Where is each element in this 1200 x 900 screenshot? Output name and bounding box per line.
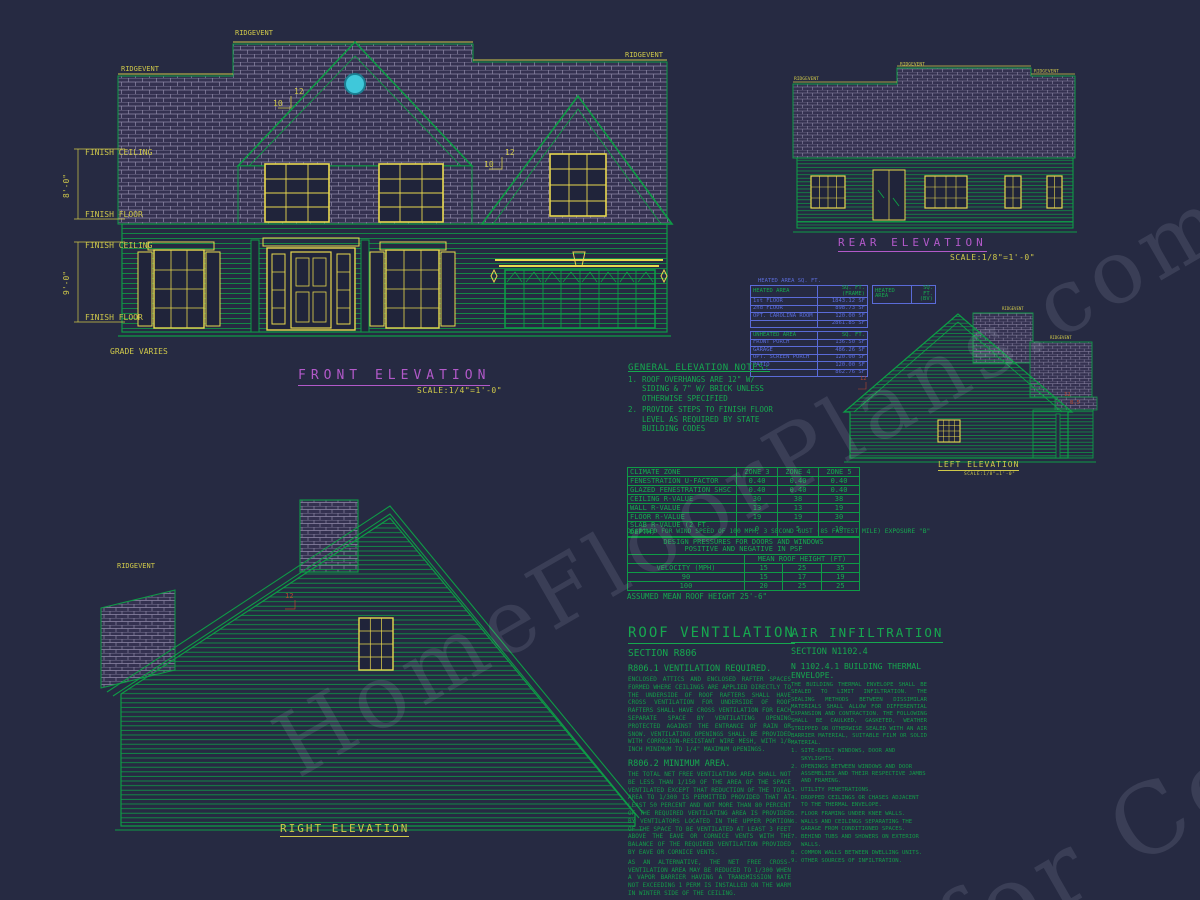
left-gable-vent bbox=[938, 420, 960, 442]
r806-1-head: R806.1 VENTILATION REQUIRED. bbox=[628, 664, 791, 674]
pitch-run: 10 bbox=[484, 160, 494, 169]
note-number: 1. bbox=[791, 748, 801, 763]
ridgevent-label: RIDGEVENT bbox=[1034, 69, 1059, 75]
dim-9-0: 9'-0" bbox=[62, 271, 71, 295]
note-text: SITE-BUILT WINDOWS, DOOR AND SKYLIGHTS. bbox=[801, 748, 927, 763]
n1102-head: N 1102.4.1 BUILDING THERMAL ENVELOPE. bbox=[791, 662, 927, 680]
table-cell: 13 bbox=[778, 504, 819, 513]
note-number: 4. bbox=[791, 795, 801, 810]
note-text: FLOOR FRAMING UNDER KNEE WALLS. bbox=[801, 811, 905, 818]
rear-sliding-door bbox=[873, 170, 905, 220]
right-elevation-title: RIGHT ELEVATION bbox=[280, 822, 409, 837]
pitch-rise: 12 bbox=[285, 592, 293, 600]
mean-roof-height-header: MEAN ROOF HEIGHT (FT) bbox=[745, 555, 860, 564]
front-door bbox=[263, 238, 359, 330]
r806-2-body: THE TOTAL NET FREE VENTILATING AREA SHAL… bbox=[628, 771, 791, 857]
air-item-7: 7.BEHIND TUBS AND SHOWERS ON EXTERIOR WA… bbox=[791, 834, 927, 849]
r806-2-head: R806.2 MINIMUM AREA. bbox=[628, 759, 791, 769]
front-elevation-scale: SCALE:1/4"=1'-0" bbox=[417, 386, 502, 395]
note-number: 7. bbox=[791, 834, 801, 849]
left-elevation-scale: SCALE:1/8"=1'-0" bbox=[964, 472, 1015, 477]
table-cell: 19 bbox=[819, 504, 860, 513]
rear-elevation-drawing: RIDGEVENT RIDGEVENT RIDGEVENT bbox=[785, 60, 1080, 238]
table-cell bbox=[751, 320, 818, 328]
table-cell: ZONE 5 bbox=[819, 468, 860, 477]
right-window bbox=[359, 618, 393, 670]
pressure-table-title: DESIGN PRESSURES FOR DOORS AND WINDOWS P… bbox=[628, 538, 860, 555]
note-number: 6. bbox=[791, 819, 801, 834]
grade-varies-label: GRADE VARIES bbox=[110, 347, 168, 356]
roof-ventilation-section: SECTION R806 bbox=[628, 648, 791, 659]
table-header-cell: UNHEATED AREA bbox=[751, 332, 818, 340]
pressure-title-line2: POSITIVE AND NEGATIVE IN PSF bbox=[630, 546, 857, 553]
finish-floor-label-upper: FINISH FLOOR bbox=[85, 210, 143, 219]
pitch-run: 8.5 bbox=[1070, 400, 1080, 406]
table-header-cell: SQ. FT. (FRAME) bbox=[818, 286, 868, 298]
note-number: 3. bbox=[791, 787, 801, 794]
table-cell: 15 bbox=[745, 573, 783, 582]
roof-ventilation-title: ROOF VENTILATION bbox=[628, 625, 795, 644]
air-item-2: 2.OPENINGS BETWEEN WINDOWS AND DOOR ASSE… bbox=[791, 764, 927, 786]
roof-ventilation-spec: ROOF VENTILATION SECTION R806 R806.1 VEN… bbox=[628, 622, 791, 900]
general-elevation-notes: GENERAL ELEVATION NOTES: 1. ROOF OVERHAN… bbox=[628, 363, 780, 433]
table-cell: 0.40 bbox=[778, 486, 819, 495]
table-cell: 13 bbox=[737, 504, 778, 513]
note-number: 2. bbox=[628, 405, 642, 433]
table-cell: 20 bbox=[745, 582, 783, 591]
rear-roof bbox=[793, 66, 1075, 158]
general-note-2: 2. PROVIDE STEPS TO FINISH FLOOR LEVEL A… bbox=[628, 405, 780, 433]
note-number: 2. bbox=[791, 764, 801, 786]
table-cell: 0.40 bbox=[819, 477, 860, 486]
pitch-rise: 12 bbox=[505, 148, 515, 157]
front-elevation-drawing: FINISH CEILING FINISH FLOOR FINISH CEILI… bbox=[55, 14, 685, 364]
r806-alternative: AS AN ALTERNATIVE, THE NET FREE CROSS-VE… bbox=[628, 859, 791, 898]
front-window-1 bbox=[138, 242, 220, 328]
note-number: 1. bbox=[628, 375, 642, 403]
front-window-2 bbox=[370, 242, 455, 328]
finish-ceiling-label-upper: FINISH CEILING bbox=[85, 148, 153, 157]
ridgevent-label: RIDGEVENT bbox=[1050, 335, 1072, 340]
table-cell: 2nd FLOOR bbox=[751, 305, 818, 313]
table-cell: 19 bbox=[737, 513, 778, 522]
area-tables-top-label: HEATED AREA SQ. FT. bbox=[750, 278, 868, 284]
note-number: 5. bbox=[791, 811, 801, 818]
table-cell: FRONT PORCH bbox=[751, 339, 818, 347]
pitch-rise: 12 bbox=[1064, 392, 1071, 398]
porch-post-right bbox=[361, 240, 369, 332]
table-cell: CLIMATE ZONE bbox=[628, 468, 737, 477]
table-cell: 38 bbox=[778, 495, 819, 504]
air-item-6: 6.WALLS AND CEILINGS SEPARATING THE GARA… bbox=[791, 819, 927, 834]
gable-window bbox=[550, 154, 606, 216]
table-cell: 0.40 bbox=[737, 486, 778, 495]
note-text: PROVIDE STEPS TO FINISH FLOOR LEVEL AS R… bbox=[642, 405, 780, 433]
table-cell: ZONE 4 bbox=[778, 468, 819, 477]
air-item-9: 9.OTHER SOURCES OF INFILTRATION. bbox=[791, 858, 927, 865]
ridgevent-label: RIDGEVENT bbox=[235, 29, 274, 37]
general-note-1: 1. ROOF OVERHANGS ARE 12" W/ SIDING & 7"… bbox=[628, 375, 780, 403]
left-elevation-title: LEFT ELEVATION bbox=[938, 460, 1019, 471]
pitch-rise: 12 bbox=[294, 87, 304, 96]
rear-elevation-scale: SCALE:1/8"=1'-0" bbox=[950, 253, 1035, 262]
note-text: UTILITY PENETRATIONS. bbox=[801, 787, 872, 794]
finish-ceiling-label-lower: FINISH CEILING bbox=[85, 241, 153, 250]
air-infiltration-spec: AIR INFILTRATION SECTION N1102.4 N 1102.… bbox=[791, 622, 927, 865]
note-text: DROPPED CEILINGS OR CHASES ADJACENT TO T… bbox=[801, 795, 927, 810]
air-item-3: 3.UTILITY PENETRATIONS. bbox=[791, 787, 927, 794]
design-pressure-table: DESIGN PRESSURES FOR DOORS AND WINDOWS P… bbox=[627, 537, 860, 591]
table-header-cell: HEATED AREA bbox=[751, 286, 818, 298]
air-infiltration-section: SECTION N1102.4 bbox=[791, 647, 927, 657]
ridgevent-label: RIDGEVENT bbox=[121, 65, 160, 73]
ridgevent-label: RIDGEVENT bbox=[117, 562, 156, 570]
r806-1-body: ENCLOSED ATTICS AND ENCLOSED RAFTER SPAC… bbox=[628, 676, 791, 754]
table-cell: 0.40 bbox=[778, 477, 819, 486]
n1102-body: THE BUILDING THERMAL ENVELOPE SHALL BE S… bbox=[791, 682, 927, 747]
front-elevation-title: FRONT ELEVATION bbox=[298, 368, 490, 386]
ridgevent-label: RIDGEVENT bbox=[900, 62, 925, 68]
wind-speed-footnote: DESIGNED FOR WIND SPEED OF 100 MPH, 3 SE… bbox=[627, 528, 930, 535]
table-cell: 25 bbox=[783, 564, 821, 573]
general-notes-title: GENERAL ELEVATION NOTES: bbox=[628, 363, 780, 373]
attic-vent-circle bbox=[345, 74, 365, 94]
table-cell: 30 bbox=[819, 513, 860, 522]
table-cell: 35 bbox=[821, 564, 859, 573]
table-cell: ZONE 3 bbox=[737, 468, 778, 477]
table-cell: 19 bbox=[778, 513, 819, 522]
note-number: 9. bbox=[791, 858, 801, 865]
air-item-5: 5.FLOOR FRAMING UNDER KNEE WALLS. bbox=[791, 811, 927, 818]
table-cell: 0.40 bbox=[737, 477, 778, 486]
air-item-1: 1.SITE-BUILT WINDOWS, DOOR AND SKYLIGHTS… bbox=[791, 748, 927, 763]
table-cell: 0.40 bbox=[819, 486, 860, 495]
rear-elevation-title: REAR ELEVATION bbox=[838, 236, 987, 252]
note-text: COMMON WALLS BETWEEN DWELLING UNITS. bbox=[801, 850, 922, 857]
left-elevation-drawing: RIDGEVENT RIDGEVENT 12 12 8.5 bbox=[830, 300, 1100, 468]
air-infiltration-title: AIR INFILTRATION bbox=[791, 625, 943, 643]
right-elevation-drawing: RIDGEVENT 12 bbox=[95, 478, 655, 836]
finish-floor-label-lower: FINISH FLOOR bbox=[85, 313, 143, 322]
note-text: OPENINGS BETWEEN WINDOWS AND DOOR ASSEMB… bbox=[801, 764, 927, 786]
note-number: 8. bbox=[791, 850, 801, 857]
table-cell: 19 bbox=[821, 573, 859, 582]
left-garage-wing bbox=[1033, 410, 1093, 458]
table-cell: GARAGE bbox=[751, 347, 818, 355]
table-cell: 25 bbox=[783, 582, 821, 591]
ridgevent-label: RIDGEVENT bbox=[794, 76, 819, 82]
air-item-8: 8.COMMON WALLS BETWEEN DWELLING UNITS. bbox=[791, 850, 927, 857]
table-cell: 30 bbox=[737, 495, 778, 504]
table-cell: 17 bbox=[783, 573, 821, 582]
table-cell: 25 bbox=[821, 582, 859, 591]
blueprint-sheet: HomeFloorPlans.com ILLEGAL to use for Co… bbox=[0, 0, 1200, 900]
porch-post-left bbox=[251, 240, 259, 332]
note-text: WALLS AND CEILINGS SEPARATING THE GARAGE… bbox=[801, 819, 927, 834]
note-text: ROOF OVERHANGS ARE 12" W/ SIDING & 7" W/… bbox=[642, 375, 780, 403]
table-cell: OPT. CAROLINA ROOM bbox=[751, 313, 818, 321]
table-cell: OPT. SCREEN PORCH bbox=[751, 354, 818, 362]
table-cell: 38 bbox=[819, 495, 860, 504]
table-cell: 15 bbox=[745, 564, 783, 573]
note-text: OTHER SOURCES OF INFILTRATION. bbox=[801, 858, 902, 865]
second-floor-window-right bbox=[379, 164, 443, 222]
note-text: BEHIND TUBS AND SHOWERS ON EXTERIOR WALL… bbox=[801, 834, 927, 849]
pitch-run: 10 bbox=[273, 99, 283, 108]
ridgevent-label: RIDGEVENT bbox=[1002, 306, 1024, 311]
second-floor-window-left bbox=[265, 164, 329, 222]
ridgevent-label: RIDGEVENT bbox=[625, 51, 664, 59]
dim-8-0: 8'-0" bbox=[62, 174, 71, 198]
air-item-4: 4.DROPPED CEILINGS OR CHASES ADJACENT TO… bbox=[791, 795, 927, 810]
pitch-rise: 12 bbox=[860, 376, 867, 382]
climate-zone-table: CLIMATE ZONE ZONE 3 ZONE 4 ZONE 5 FENEST… bbox=[627, 467, 860, 537]
table-cell: 1st FLOOR bbox=[751, 298, 818, 306]
